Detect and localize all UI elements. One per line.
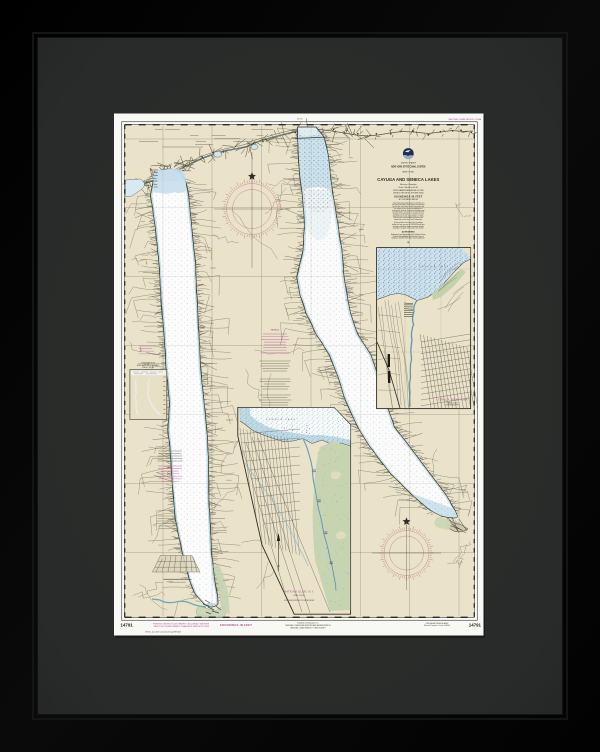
- svg-text:SOUNDINGS IN FEET: SOUNDINGS IN FEET: [445, 405, 459, 407]
- svg-text:WATKINS GLEN, N.Y.: WATKINS GLEN, N.Y.: [284, 590, 315, 594]
- svg-text:AT LOW WATER DATUM: AT LOW WATER DATUM: [399, 198, 419, 201]
- svg-text:14791: 14791: [121, 623, 134, 628]
- svg-text:AUTHORITIES: AUTHORITIES: [402, 231, 416, 234]
- svg-text:NORTH AMERICAN DATUM OF 1983: NORTH AMERICAN DATUM OF 1983: [393, 189, 424, 192]
- svg-text:Mercator Projection: Mercator Projection: [400, 183, 416, 186]
- svg-text:Scale 1:68,000 at 42°40': Scale 1:68,000 at 42°40': [399, 186, 419, 189]
- svg-text:NEW YORK: NEW YORK: [403, 171, 415, 173]
- svg-text:NATIONAL OCEAN SERVICE • NOAA: NATIONAL OCEAN SERVICE • NOAA: [449, 118, 482, 121]
- svg-text:42°55': 42°55': [297, 119, 303, 121]
- svg-text:(WORLD GEODETIC SYSTEM 1984): (WORLD GEODETIC SYSTEM 1984): [393, 193, 424, 195]
- svg-text:CAYUGA LAKE: CAYUGA LAKE: [419, 265, 450, 268]
- svg-text:ITHACA, NEW YORK: ITHACA, NEW YORK: [438, 398, 468, 402]
- svg-text:UNITED STATES: UNITED STATES: [401, 161, 417, 164]
- svg-text:SOUNDINGS IN FEET: SOUNDINGS IN FEET: [220, 623, 252, 627]
- svg-text:14791: 14791: [469, 623, 482, 628]
- svg-text:CAYUGA AND SENECA LAKES: CAYUGA AND SENECA LAKES: [377, 177, 439, 182]
- svg-text:NEW YORK STATE CANAL SYSTEM: NEW YORK STATE CANAL SYSTEM: [391, 166, 425, 169]
- svg-text:NOTE A: NOTE A: [271, 329, 279, 332]
- svg-text:SENECA LAKE: SENECA LAKE: [266, 418, 296, 421]
